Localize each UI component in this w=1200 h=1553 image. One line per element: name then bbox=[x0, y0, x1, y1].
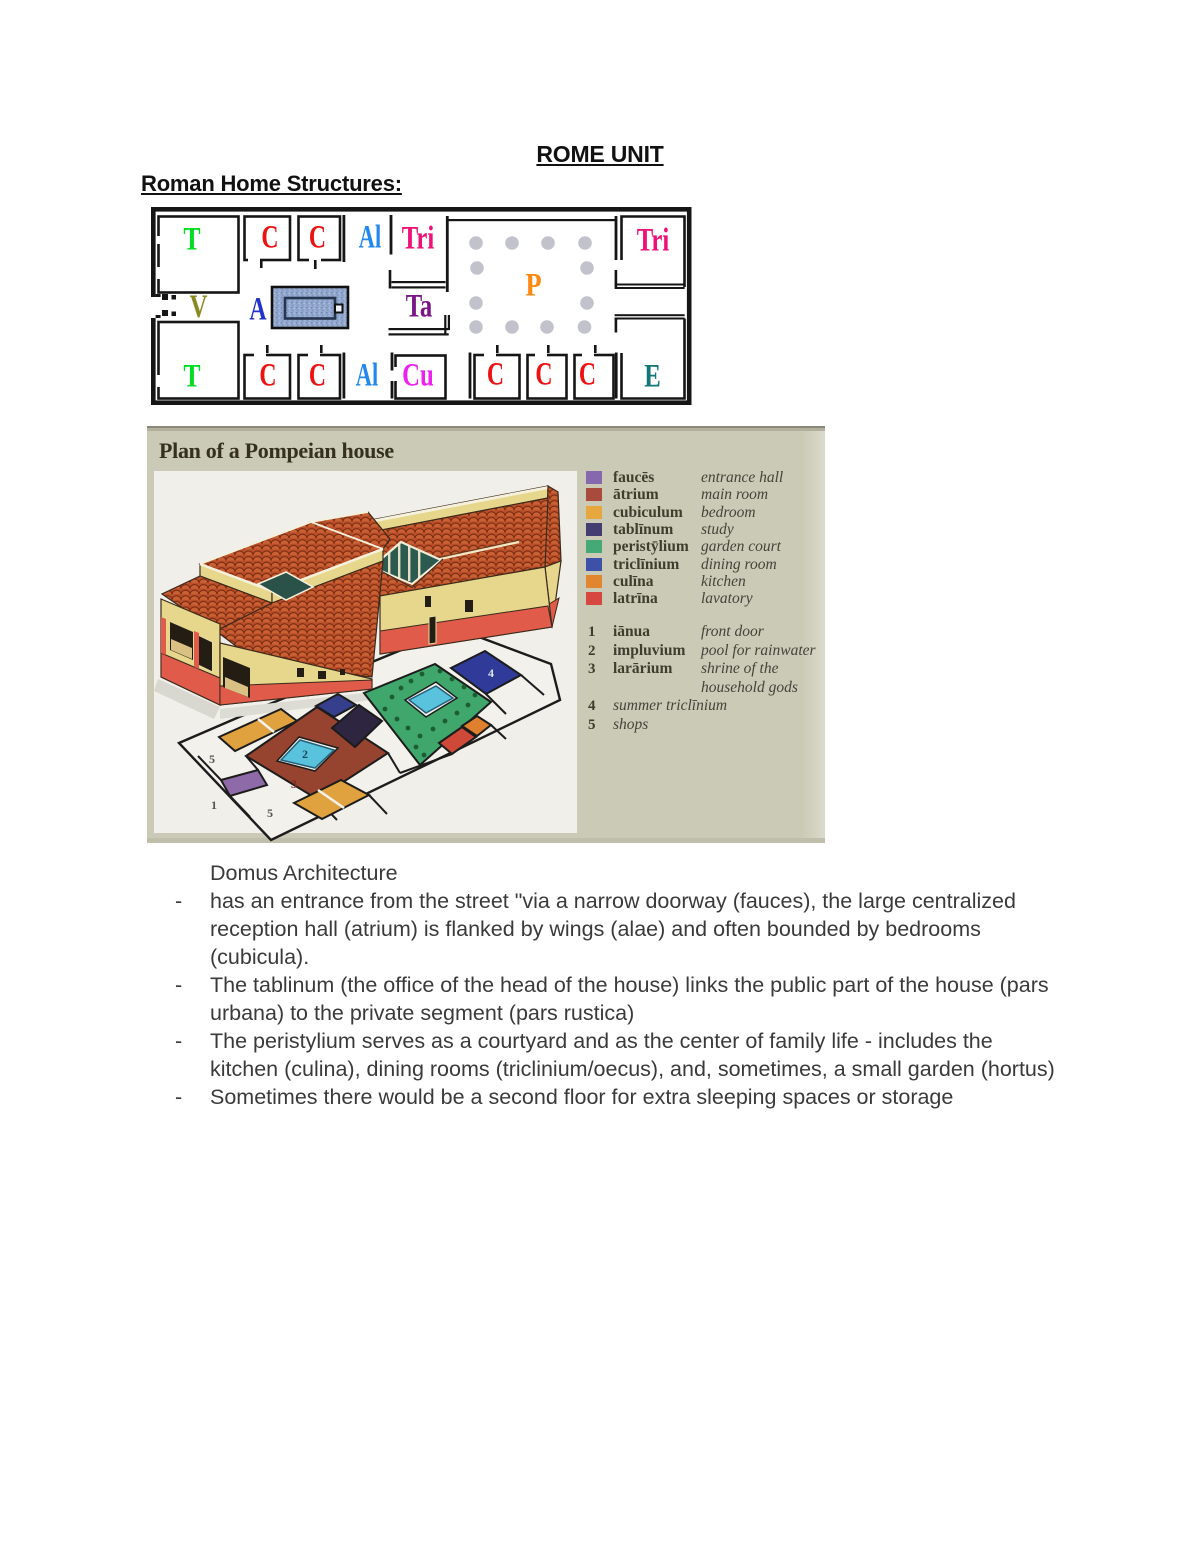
svg-text:T: T bbox=[183, 359, 200, 395]
svg-text:C: C bbox=[309, 219, 326, 256]
svg-text:T: T bbox=[183, 222, 200, 258]
svg-text:Tri: Tri bbox=[402, 220, 435, 256]
svg-text:P: P bbox=[525, 267, 541, 303]
svg-text:Ta: Ta bbox=[406, 288, 433, 324]
svg-text:C: C bbox=[487, 356, 504, 393]
svg-text:V: V bbox=[190, 289, 208, 325]
svg-text:C: C bbox=[309, 357, 326, 394]
svg-text:Tri: Tri bbox=[637, 222, 670, 258]
svg-text:A: A bbox=[249, 291, 266, 328]
svg-text:C: C bbox=[261, 219, 278, 256]
svg-text:Al: Al bbox=[359, 219, 382, 255]
svg-text:Cu: Cu bbox=[402, 357, 434, 393]
svg-text:E: E bbox=[644, 358, 661, 394]
svg-text:C: C bbox=[579, 356, 596, 393]
svg-text:Al: Al bbox=[356, 357, 379, 393]
svg-text:C: C bbox=[535, 356, 552, 393]
svg-text:C: C bbox=[259, 357, 276, 394]
